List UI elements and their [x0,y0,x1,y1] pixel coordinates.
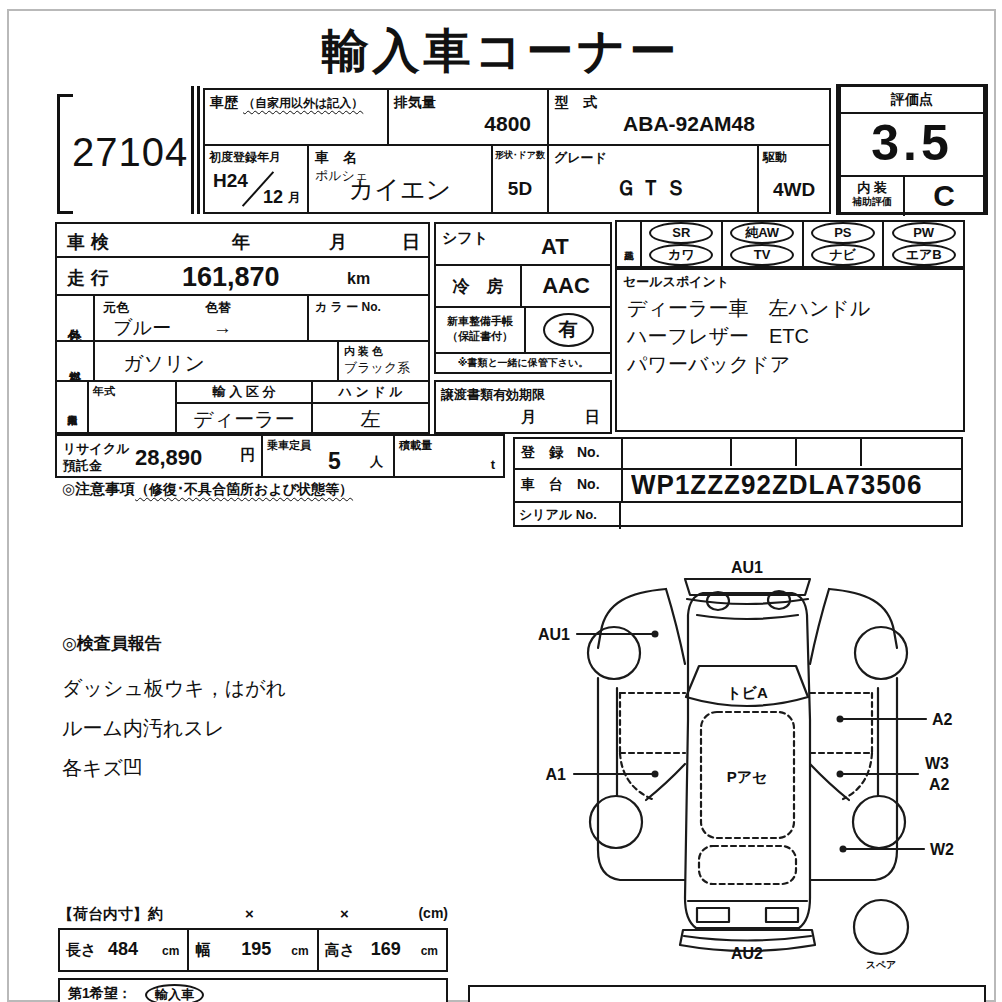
width-unit: cm [291,944,308,958]
left-quarter-outline [598,796,685,880]
displacement-label: 排気量 [394,94,436,112]
cargo-dims-title: 【荷台内寸】約 [58,905,163,924]
right-quarter-outline [810,796,897,880]
displacement-cell: 排気量 4800 [387,88,549,146]
spare-tire [854,900,908,954]
import-type-cell: 輸 入 区 分 ディーラー [175,380,313,434]
registration-no-value [623,439,961,468]
right-apillar-line [810,589,829,664]
cargo-dims-table: 長さ 484 cm 幅 195 cm 高さ 169 cm [58,928,448,972]
height-value: 169 [371,939,401,960]
right-fender-outline [829,589,897,648]
mileage-row: 走行 161,870 km [55,256,430,296]
caution-title: ◎注意事項 [62,480,135,497]
load-unit: t [491,457,495,472]
model-code-value: ABA-92AM48 [549,112,829,136]
mileage-value: 161,870 [182,262,280,293]
right-cpillar-line [810,764,849,800]
equipment-col-3: PS ナビ [802,222,883,266]
first-reg-month: 12 [263,187,283,208]
shaken-month: 月 [329,230,347,254]
model-code-label: 型 式 [555,94,597,112]
recycle-cell: リサイクル 預託金 28,890 円 [55,434,263,478]
maintenance-label: 新車整備手帳 [436,314,524,329]
car-history-note: （自家用以外は記入） [243,95,363,112]
equipment-sr: SR [649,222,713,244]
equipment-col-4: PW エアB [882,222,963,266]
length-label: 長さ [66,941,96,960]
height-unit: cm [421,944,438,958]
hood-line [697,615,798,619]
grade-value: ＧＴＳ [549,174,757,202]
drive-label: 駆動 [763,149,787,166]
taillight-right [766,908,798,922]
left-cpillar-line [646,764,685,800]
recycle-amount: 28,890 [135,445,202,471]
shaken-label: 車検 [67,230,115,254]
color-value: ブルー [113,315,171,341]
year-model-cell: 年式 [87,380,177,434]
capacity-value: 5 [328,448,341,475]
wheel-front-right [855,627,907,679]
interior-sub-label: 補助評価 [841,195,903,208]
height-cell: 高さ 169 cm [317,930,446,970]
auction-sheet: 輸入車コーナー 27104 車歴 （自家用以外は記入） 排気量 4800 型 式… [0,0,1002,1002]
lot-bracket [57,94,73,214]
interior-color-value: ブラック系 [344,359,410,377]
equipment-navi: ナビ [811,244,875,266]
mileage-label: 走行 [67,266,115,290]
shift-cell: シフト AT [434,222,612,266]
doors-value: 5D [493,178,547,200]
width-label: 幅 [195,941,210,960]
car-body-outline [685,593,810,928]
color-no-label: カ ラ ー No. [315,299,381,316]
equipment-label-cell: 純正品 [617,222,642,266]
load-cell: 積載量 t [393,434,505,478]
grade-label: グレード [554,149,607,167]
left-sill-lines [598,678,617,796]
equipment-col-2: 純AW TV [721,222,802,266]
equipment-kawa: カワ [649,244,713,266]
interior-label-cell: 内 装 補助評価 [841,177,905,216]
sales-point-line: ディーラー車 左ハンドル [627,294,870,322]
right-sill-lines [878,678,897,796]
shift-label: シフト [442,229,488,248]
equipment-airbag: エアB [892,244,956,266]
interior-color-cell: 内 装 色 ブラック系 [337,340,430,382]
shaken-row: 車検 年 月 日 [55,222,430,258]
ac-value: AAC [522,266,610,306]
sales-point-line: パワーバックドア [627,350,870,378]
ac-cell: 冷 房 AAC [434,264,612,308]
inspector-line: ダッシュ板ウキ，はがれ [62,668,286,708]
registration-table: 登 録 No. 車 台 No. WP1ZZZ92ZDLA73506 シリアル N… [513,437,963,527]
inspector-line: ルーム内汚れスレ [62,708,286,748]
equipment-col-1: SR カワ [642,222,721,266]
car-condition-diagram: AU1 AU1 トビA Pアセ A1 A2 W3 A2 W2 AU2 スペア [528,550,988,995]
diagram-label-right-rear-1: W3 [925,755,949,772]
wish-row-partial: 第1希望： 輸入車 [58,978,448,1002]
left-fender-outline [598,589,666,648]
interior-label: 内 装 [841,180,903,195]
equipment-tv: TV [730,244,794,266]
dims-x1: × [245,905,254,922]
import-type-label: 輸 入 区 分 [177,382,311,404]
rear-bumper-line [684,936,811,941]
page-title: 輸入車コーナー [0,20,1002,83]
registration-row: 登 録 No. [515,439,961,470]
car-name-value: カイエン [309,173,491,206]
length-cell: 長さ 484 cm [60,930,187,970]
evaluation-box: 評価点 3.5 内 装 補助評価 C [836,84,988,215]
interior-grade: C [905,177,983,216]
ac-label: 冷 房 [436,266,522,306]
leader-dots [652,631,847,853]
grade-cell: グレード ＧＴＳ [547,144,759,214]
first-registration-label: 初度登録年月 [209,149,281,166]
car-history-cell: 車歴 （自家用以外は記入） [203,88,389,146]
score-label: 評価点 [841,87,983,114]
height-label: 高さ [325,941,355,960]
maintenance-label-cell: 新車整備手帳 （保証書付） [436,308,526,352]
handle-value: 左 [313,404,428,434]
import-label-cell: 輸入車用 [55,380,89,434]
diagram-label-right-quarter: W2 [930,841,954,858]
lot-number: 27104 [72,130,188,175]
diagram-label-left-front: AU1 [538,626,570,643]
shaken-day: 日 [402,230,420,254]
capacity-cell: 乗車定員 5 人 [261,434,395,478]
width-cell: 幅 195 cm [187,930,316,970]
chassis-no-label: 車 台 No. [515,470,623,501]
registration-no-label: 登 録 No. [515,439,623,468]
first-reg-year: H24 [213,170,248,192]
equipment-table: 純正品 SR カワ 純AW TV PS ナビ PW エアB [615,220,965,268]
capacity-unit: 人 [370,453,383,471]
color-change-label: 色替 [205,299,231,317]
fuel-cell: ガソリン [93,340,339,382]
equipment-aw: 純AW [730,222,794,244]
sales-points-box: セールスポイント ディーラー車 左ハンドル ハーフレザー ETC パワーバックド… [615,268,965,432]
diagram-label-left-door: A1 [546,766,567,783]
taillight-left [697,908,729,922]
equipment-pw: PW [892,222,956,244]
inspector-report-title: ◎検査員報告 [62,632,162,655]
maintenance-value-cell: 有 [526,308,610,352]
import-type-value: ディーラー [177,404,311,434]
chassis-no-value: WP1ZZZ92ZDLA73506 [623,470,961,503]
drive-cell: 駆動 4WD [757,144,831,214]
fuel-value: ガソリン [123,350,205,377]
sales-points-label: セールスポイント [623,273,729,291]
chassis-row: 車 台 No. WP1ZZZ92ZDLA73506 [515,470,961,503]
score-value: 3.5 [841,114,983,177]
maintenance-value: 有 [543,313,594,347]
wish-label: 第1希望： [68,985,132,1002]
serial-no-label: シリアル No. [515,503,621,529]
sales-point-line: ハーフレザー ETC [627,322,870,350]
yen-label: 円 [240,446,255,465]
capacity-label: 乗車定員 [267,438,311,453]
color-arrow: → [213,317,232,339]
dims-x2: × [340,905,349,922]
transfer-label: 譲渡書類有効期限 [441,386,545,404]
car-name-label: 車 名 [315,149,357,167]
diagram-label-rear: AU2 [731,945,763,962]
ext-color-cell: 元色 色替 ブルー → [93,294,309,342]
registration-divider [860,439,862,466]
cargo-dims-header: 【荷台内寸】約 × × (cm) [58,905,448,927]
doors-cell: 形状･ドア数 5D [491,144,549,214]
diagram-label-front: AU1 [731,559,763,576]
interior-color-label: 内 装 色 [344,344,383,359]
bottom-right-box-partial [468,985,986,1002]
registration-divider [730,439,732,466]
mileage-unit: km [347,270,370,288]
month-suffix: 月 [288,189,301,207]
length-unit: cm [162,944,179,958]
diagram-label-right-rear-2: A2 [929,776,950,793]
recycle-label: リサイクル 預託金 [63,440,130,474]
shaken-year: 年 [232,230,250,254]
registration-divider [795,439,797,466]
wish-value: 輸入車 [145,984,204,1002]
diagram-label-windshield: トビA [726,684,768,701]
year-model-label: 年式 [93,384,115,399]
length-value: 484 [108,939,138,960]
diagram-label-roof: Pアセ [727,768,768,785]
serial-row: シリアル No. [515,503,961,529]
inspector-line: 各キズ凹 [62,748,286,788]
transfer-cell: 譲渡書類有効期限 月 日 [434,380,612,434]
equipment-ps: PS [811,222,875,244]
width-value: 195 [241,939,271,960]
left-apillar-line [666,589,685,664]
ext-color-label-cell: 外色 [55,294,95,342]
fuel-label-cell: 燃料 [55,340,95,382]
maintenance-cell: 新車整備手帳 （保証書付） 有 [434,306,612,354]
transfer-day: 日 [585,408,600,427]
model-code-cell: 型 式 ABA-92AM48 [547,88,831,146]
diagram-label-right-front: A2 [932,711,953,728]
diagram-label-spare: スペア [866,959,897,970]
color-no-cell: カ ラ ー No. [307,294,430,342]
maintenance-sub-label: （保証書付） [436,329,524,344]
header-divider [191,86,200,214]
car-history-label: 車歴 [210,94,238,112]
inspector-report-lines: ダッシュ板ウキ，はがれ ルーム内汚れスレ 各キズ凹 [62,668,286,788]
drive-value: 4WD [759,179,829,201]
doors-label: 形状･ドア数 [495,149,545,162]
dims-unit: (cm) [418,905,448,921]
handle-label: ハ ン ド ル [313,382,428,404]
rear-window-dashed [699,846,796,884]
serial-no-value [621,503,961,529]
caution-note: （修復･不具合箇所および状態等） [135,481,353,497]
load-label: 積載量 [399,438,432,453]
caution-heading: ◎注意事項（修復･不具合箇所および状態等） [62,480,353,499]
handle-cell: ハ ン ド ル 左 [311,380,430,434]
keep-note-strip: ※書類と一緒に保管下さい。 [434,352,612,374]
car-name-cell: 車 名 ポルシェ カイエン [307,144,493,214]
displacement-value: 4800 [484,112,531,136]
transfer-month: 月 [521,408,536,427]
shift-value: AT [541,234,569,260]
first-registration-cell: 初度登録年月 H24 12 月 [203,144,309,214]
